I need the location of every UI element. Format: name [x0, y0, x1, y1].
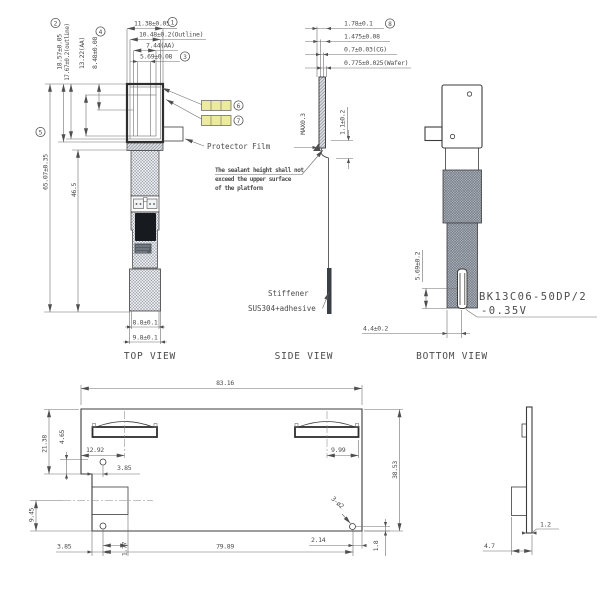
highlight-box-6 — [202, 101, 232, 111]
dim-stiffener-width: 9.8±0.1 — [133, 334, 158, 342]
hole-top-left — [100, 459, 106, 465]
glass-panel — [127, 84, 163, 142]
dim-height-glass: 18.57±0.05 — [56, 34, 64, 70]
svg-text:4: 4 — [99, 29, 103, 36]
balloon-8: 8 — [385, 19, 394, 28]
dim-overall-width: 83.16 — [216, 379, 234, 387]
dim-sealant-max: MAX0.3 — [299, 113, 307, 135]
stiffener-block — [130, 269, 161, 311]
dim-thickness: 1.2 — [540, 521, 551, 529]
dim-hole-bottom-x: 3.85 — [57, 543, 72, 551]
dim-hole-span: 79.89 — [216, 543, 234, 551]
dim-total-length: 65.07±0.35 — [42, 154, 50, 190]
balloon-4: 4 — [96, 27, 105, 36]
bottom-fpc-shoulder — [443, 170, 482, 223]
dim-total-thickness: 1.78±0.1 — [344, 20, 373, 28]
connector-part-line1: BK13C06-50DP/2 — [479, 291, 587, 303]
dim-connector-offset: 4.4±0.2 — [363, 325, 388, 333]
svg-text:2: 2 — [54, 20, 58, 27]
dim-hole-right-x: 2.14 — [311, 536, 326, 544]
stiffener-label-line1: Stiffener — [268, 289, 309, 298]
svg-text:7: 7 — [237, 118, 241, 125]
hole-bottom-left — [100, 523, 106, 529]
sealant-note-line1: The sealant height shall not — [215, 167, 304, 174]
sealant-note-line3: of the platform — [215, 185, 263, 192]
dim-left-height: 21.38 — [41, 435, 49, 453]
svg-text:3: 3 — [183, 54, 187, 61]
dim-clip-left-x: 12.92 — [86, 446, 104, 454]
dim-wafer-thickness: 0.775±0.025(Wafer) — [344, 59, 408, 67]
board-connector — [458, 269, 468, 309]
protector-film-label: Protector Film — [207, 142, 271, 151]
dim-overall-height: 38.53 — [391, 461, 399, 479]
dim-width-inner: 5.69±0.08 — [140, 53, 173, 61]
dim-hole-bottom-x2: 1.77 — [121, 541, 129, 556]
dim-module-thickness: 1.475±0.08 — [344, 33, 380, 41]
bottom-view: 5.69±0.2 4.4±0.2 BK13C06-50DP/2 -0.35V B… — [362, 85, 597, 362]
dim-hole-top-x: 3.85 — [117, 464, 132, 472]
dim-left-lower-height: 9.45 — [28, 507, 36, 522]
dim-width-glass: 11.38±0.05 — [134, 20, 170, 28]
dim-height-aa: 13.22(AA) — [78, 37, 86, 69]
dim-width-aa: 7.44(AA) — [146, 42, 175, 50]
side-stiffener-bar — [327, 268, 332, 314]
svg-text:5: 5 — [39, 129, 43, 136]
outline-drawing: 83.16 38.53 21.38 4.65 12.92 3.85 9.45 3… — [28, 379, 404, 556]
holes-callout: 3-ø2 — [329, 495, 345, 511]
svg-text:8: 8 — [388, 21, 392, 28]
dim-fpc-length: 46.5 — [70, 182, 78, 197]
dim-height-inner: 8.48±0.08 — [91, 37, 99, 70]
stiffener-label-line2: SUS304+adhesive — [248, 304, 316, 313]
balloon-6: 6 — [234, 101, 243, 110]
body-hole-2 — [450, 134, 454, 138]
dim-depth: 4.7 — [484, 542, 495, 550]
connector-part-line2: -0.35V — [481, 305, 527, 317]
body-hole-1 — [467, 92, 471, 96]
top-view-label: TOP VIEW — [124, 351, 176, 362]
balloon-3: 3 — [180, 52, 189, 61]
dim-width-outline: 10.48±0.2(Outline) — [139, 31, 203, 39]
dim-step-height: 4.65 — [58, 429, 66, 444]
ic-marking — [135, 244, 152, 254]
dim-hole-right-y: 1.8 — [372, 540, 380, 551]
side-view-label: SIDE VIEW — [275, 351, 334, 362]
balloon-5: 5 — [36, 127, 45, 136]
dim-tail-width: 8.8±0.1 — [133, 319, 158, 327]
body-tab — [425, 127, 442, 141]
fpc-tail-upper — [131, 151, 159, 197]
profile-view: 1.2 4.7 — [483, 407, 559, 555]
balloon-2: 2 — [51, 18, 60, 27]
side-panel — [319, 77, 326, 148]
dim-bend: 1.1±0.2 — [339, 110, 347, 135]
profile-bar — [527, 407, 533, 533]
side-view: 1.78±0.1 1.475±0.08 0.7±0.03(CG) 0.775±0… — [215, 19, 411, 362]
profile-block — [512, 487, 527, 516]
side-fpc-line — [321, 148, 329, 268]
bottom-body — [442, 85, 482, 148]
dim-clip-right-x: 9.99 — [331, 446, 346, 454]
engineering-drawing-page: 11.38±0.05 10.48±0.2(Outline) 7.44(AA) 5… — [0, 0, 600, 600]
profile-tab — [522, 424, 527, 437]
sealant-strip — [127, 143, 163, 151]
svg-text:6: 6 — [237, 103, 241, 110]
dim-cg-thickness: 0.7±0.03(CG) — [344, 46, 387, 54]
protector-film-tab — [163, 127, 183, 141]
dim-connector: 5.69±0.2 — [414, 251, 422, 280]
drawing-canvas: 11.38±0.05 10.48±0.2(Outline) 7.44(AA) 5… — [0, 0, 600, 600]
bottom-view-label: BOTTOM VIEW — [416, 351, 488, 362]
svg-text:1: 1 — [171, 19, 175, 26]
highlight-box-7 — [202, 116, 232, 126]
dim-height-outline: 17.67±0.2(outline) — [65, 23, 71, 81]
hole-bottom-right — [350, 524, 356, 530]
balloon-7: 7 — [234, 116, 243, 125]
aa-window — [134, 95, 157, 136]
ic-chip — [135, 213, 156, 241]
sealant-note-line2: exceed the upper surface — [215, 176, 292, 183]
balloon-1: 1 — [168, 17, 177, 26]
